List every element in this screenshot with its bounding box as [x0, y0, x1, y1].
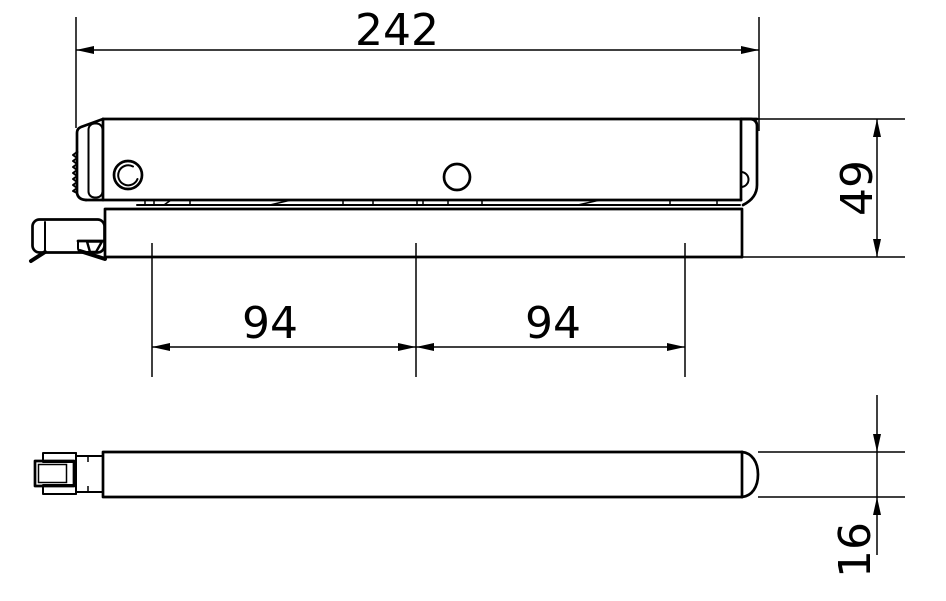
- dimension-94-right: 94: [416, 243, 685, 377]
- arrowhead-down: [873, 434, 881, 452]
- plug-body-inner: [39, 465, 67, 483]
- neck-section: [76, 453, 103, 494]
- left-cap-inner-strip: [89, 124, 103, 198]
- dimension-value-49: 49: [832, 160, 883, 216]
- dimension-16: 16: [758, 395, 905, 578]
- connector-top-view: [31, 220, 105, 262]
- arrowhead-left: [76, 46, 94, 54]
- arrowhead-right: [667, 343, 685, 351]
- body-left-lower-corner: [77, 152, 86, 200]
- bar-right-cap: [742, 452, 758, 497]
- dimension-242: 242: [76, 5, 759, 131]
- dimension-value-16: 16: [830, 522, 881, 578]
- arrowhead-up: [873, 119, 881, 137]
- drawing-sheet: 242 49 94 94: [0, 0, 946, 601]
- hole-middle: [444, 164, 470, 190]
- dimension-49: 49: [832, 119, 883, 257]
- arrowhead-right: [741, 46, 759, 54]
- body-right-cap: [741, 119, 757, 205]
- arrowhead-right: [398, 343, 416, 351]
- dimension-value-94-left: 94: [242, 298, 298, 349]
- dimension-value-94-right: 94: [525, 298, 581, 349]
- mounting-plate-outline: [105, 209, 742, 257]
- bar-outline: [103, 452, 742, 497]
- dimension-94-left: 94: [152, 243, 416, 377]
- arrowhead-down: [873, 239, 881, 257]
- screw-hole-left-inner-arc: [118, 165, 137, 185]
- arrowhead-left: [152, 343, 170, 351]
- connector-latch-wedge: [87, 242, 102, 253]
- dimension-value-242: 242: [355, 5, 439, 56]
- side-view: [35, 452, 758, 497]
- connector-side-view: [35, 453, 76, 494]
- arrowhead-up: [873, 497, 881, 515]
- arrowhead-left: [416, 343, 434, 351]
- technical-drawing: 242 49 94 94: [0, 0, 946, 601]
- top-view: [31, 119, 905, 261]
